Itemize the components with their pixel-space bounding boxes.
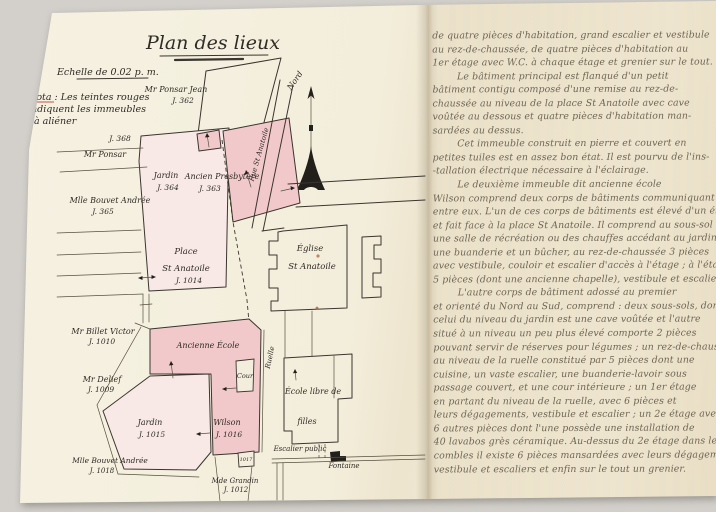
manuscript-line: bâtiment contigu composé d'une remise au… xyxy=(432,83,712,98)
manuscript-line: une salle de récréation ou des chauffes … xyxy=(433,232,713,247)
manuscript-line: Le bâtiment principal est flanqué d'un p… xyxy=(432,69,712,84)
manuscript-line: vestibule et escaliers et enfin sur le t… xyxy=(434,462,714,477)
label-bouvet1018: Mlle Bouvet Andrée xyxy=(71,456,148,465)
label-ponsar-jean-num: J. 362 xyxy=(170,96,194,105)
label-ecole-libre-2: filles xyxy=(296,417,316,426)
manuscript-line: situé à un niveau un peu plus élevé comp… xyxy=(433,327,713,342)
manuscript-line: passage couvert, et une cour intérieure … xyxy=(433,381,713,396)
ecole-libre-building xyxy=(284,354,352,444)
label-bouvet365: Mlle Bouvet Andrée xyxy=(69,196,151,205)
label-eglise-2: St Anatoile xyxy=(288,262,336,272)
label-delief: Mr Delief xyxy=(82,375,124,384)
label-jardin1015: Jardin xyxy=(136,418,163,427)
label-delief-num: J. 1009 xyxy=(86,385,115,394)
nota-line2: indiquent les immeubles xyxy=(28,104,146,115)
label-jardin364-num: J. 364 xyxy=(155,183,179,192)
manuscript-line: et fait face à la place St Anatoile. Il … xyxy=(433,218,713,233)
manuscript-line: en partant du niveau de la ruelle, avec … xyxy=(433,394,713,409)
manuscript-page: de quatre pièces d'habitation, grand esc… xyxy=(432,29,714,477)
manuscript-line: chaussée au niveau de la place St Anatoi… xyxy=(432,96,712,111)
scanned-archive-document: Plan des lieux Echelle de 0.02 p. m. Not… xyxy=(0,0,716,512)
label-ancienne-ecole: Ancienne École xyxy=(176,341,240,350)
label-ruelle: Ruelle xyxy=(264,346,277,371)
label-ecole-libre: École libre de xyxy=(284,387,341,396)
manuscript-line: au niveau de la ruelle constitué par 5 p… xyxy=(433,354,713,369)
nota-line3: à aliéner xyxy=(34,116,78,127)
manuscript-line: de quatre pièces d'habitation, grand esc… xyxy=(432,29,712,44)
eglise-annex xyxy=(362,236,381,298)
label-wilson: Wilson xyxy=(213,418,240,427)
label-jardin364: Jardin xyxy=(152,171,179,180)
nota-line1: Nota : Les teintes rouges xyxy=(27,92,150,103)
label-jardin1015-num: J. 1015 xyxy=(137,430,166,439)
scale-label: Echelle de 0.02 p. m. xyxy=(56,67,159,78)
manuscript-line: au rez-de-chaussée, de quatre pièces d'h… xyxy=(432,42,712,57)
label-wilson-num: J. 1016 xyxy=(214,430,243,439)
label-bouvet1018-num: J. 1018 xyxy=(88,467,115,475)
paper-shadow-wrap: Plan des lieux Echelle de 0.02 p. m. Not… xyxy=(0,0,716,512)
manuscript-line: L'autre corps de bâtiment adossé au prem… xyxy=(433,286,713,301)
manuscript-line: entre eux. L'un de ces corps de bâtiment… xyxy=(433,205,713,220)
manuscript-line: Cet immeuble construit en pierre et couv… xyxy=(433,137,713,152)
label-place-num: J. 1014 xyxy=(174,276,203,285)
manuscript-line: 5 pièces (dont une ancienne chapelle), v… xyxy=(433,272,713,287)
title-underline xyxy=(160,55,268,56)
label-eglise: Église xyxy=(296,242,323,254)
scale-underline xyxy=(77,78,148,79)
label-place-2: St Anatoile xyxy=(162,264,210,274)
label-ponsar-jean: Mr Ponsar Jean xyxy=(144,85,208,94)
label-1017: 1017 xyxy=(240,457,254,463)
manuscript-line: cuisine, un vaste escalier, une buanderi… xyxy=(433,367,713,382)
manuscript-line: 6 autres pièces dont l'une possède une i… xyxy=(434,421,714,436)
label-escalier-public: Escalier public xyxy=(273,445,327,453)
manuscript-line: combles il existe 6 pièces mansardées av… xyxy=(434,448,714,463)
north-label: Nord xyxy=(285,69,305,92)
manuscript-line: pouvant servir de réserves pour légumes … xyxy=(433,340,713,355)
manuscript-line: et orienté du Nord au Sud, comprend : de… xyxy=(433,299,713,314)
label-grandin: Mde Grandin xyxy=(211,477,259,485)
fontaine-mark xyxy=(330,451,346,462)
document-sheet: Plan des lieux Echelle de 0.02 p. m. Not… xyxy=(0,0,716,512)
manuscript-line: -tallation électrique nécessaire à l'écl… xyxy=(433,164,713,179)
wilson-east-wall xyxy=(262,330,264,452)
label-grandin-num: J. 1012 xyxy=(222,486,249,494)
manuscript-line: 1er étage avec W.C. à chaque étage et gr… xyxy=(432,56,712,71)
manuscript-line: avec vestibule, couloir et escalier d'ac… xyxy=(433,259,713,274)
title-underline-2 xyxy=(175,59,243,60)
label-billet-num: J. 1010 xyxy=(87,337,116,346)
manuscript-line: Le deuxième immeuble dit ancienne école xyxy=(433,178,713,193)
label-j368: J. 368 xyxy=(107,134,131,143)
label-place: Place xyxy=(173,247,197,257)
manuscript-line: petites tuiles est en assez bon état. Il… xyxy=(433,150,713,165)
manuscript-line: sardées au dessus. xyxy=(433,123,713,138)
manuscript-line: Wilson comprend deux corps de bâtiments … xyxy=(433,191,713,206)
label-ponsar: Mr Ponsar xyxy=(83,150,127,159)
manuscript-line: 40 lavabos grès céramique. Au-dessus du … xyxy=(434,435,714,450)
label-billet: Mr Billet Victor xyxy=(70,327,135,336)
label-presbytere-num: J. 363 xyxy=(197,184,221,193)
manuscript-line: celui du niveau du jardin est une cave v… xyxy=(433,313,713,328)
small-pink-building xyxy=(197,130,221,151)
label-fontaine: Fontaine xyxy=(327,462,359,470)
map-title: Plan des lieux xyxy=(145,32,280,54)
plan-des-lieux-map: Plan des lieux Echelle de 0.02 p. m. Not… xyxy=(0,0,430,512)
west-parcel-boundary-lines xyxy=(57,148,152,329)
label-cour: Cour xyxy=(237,372,254,380)
label-bouvet365-num: J. 365 xyxy=(90,207,114,216)
manuscript-line: voûtée au dessous et quatre pièces d'hab… xyxy=(433,110,713,125)
manuscript-line: une buanderie et un bûcher, au rez-de-ch… xyxy=(433,245,713,260)
church-alley-lines xyxy=(285,311,312,357)
manuscript-line: leurs dégagements, vestibule et escalier… xyxy=(434,408,714,423)
